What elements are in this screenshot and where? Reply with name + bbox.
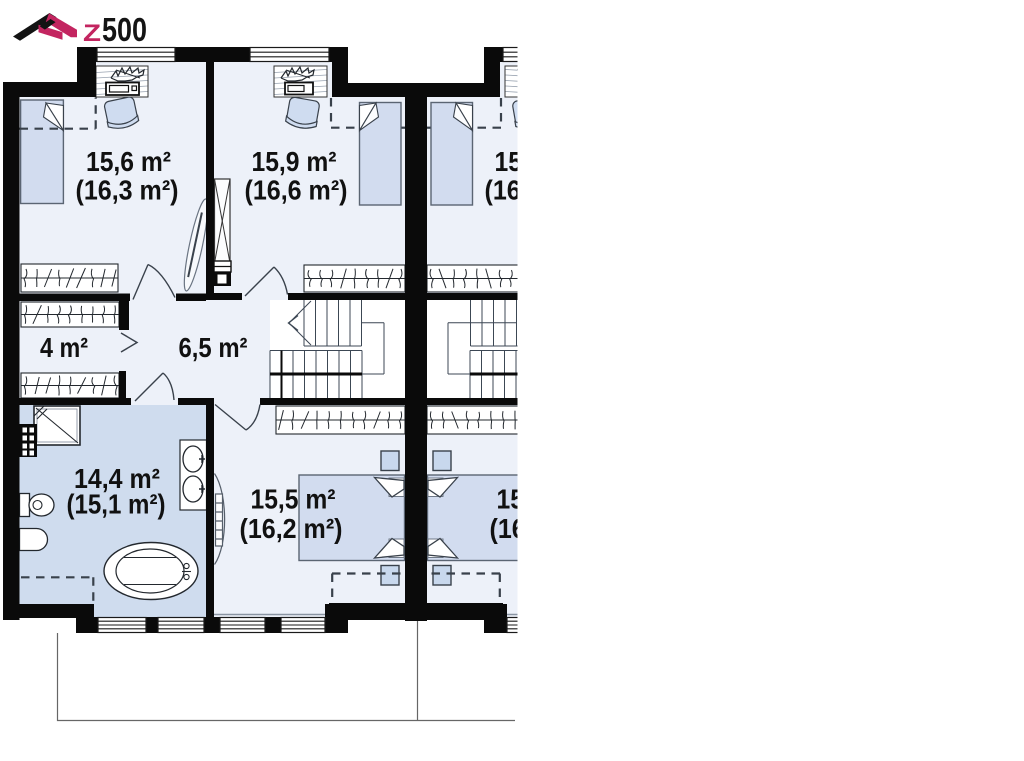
svg-text:Z: Z [83, 20, 101, 47]
svg-text:500: 500 [102, 12, 147, 49]
svg-text:(16,6 m²): (16,6 m²) [245, 175, 348, 206]
svg-text:(16,2 m²): (16,2 m²) [240, 513, 343, 544]
svg-text:15,9 m²: 15,9 m² [252, 146, 337, 177]
svg-text:(15,1 m²): (15,1 m²) [67, 489, 166, 520]
svg-text:15,5 m²: 15,5 m² [251, 484, 336, 515]
svg-text:4 m²: 4 m² [40, 332, 88, 363]
svg-text:15,6 m²: 15,6 m² [86, 146, 171, 177]
svg-text:6,5 m²: 6,5 m² [179, 332, 248, 363]
svg-text:(16,3 m²): (16,3 m²) [76, 175, 179, 206]
